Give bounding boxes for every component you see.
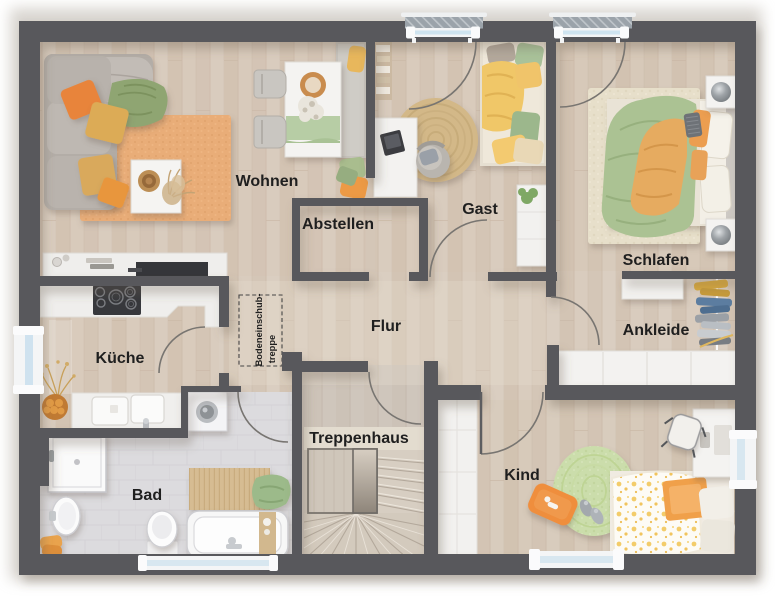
svg-text:Bad: Bad	[132, 487, 162, 504]
svg-text:Ankleide: Ankleide	[623, 322, 690, 339]
svg-text:Schlafen: Schlafen	[623, 252, 690, 269]
svg-text:Wohnen: Wohnen	[236, 173, 299, 190]
svg-text:Bodeneinschub-: Bodeneinschub-	[254, 294, 264, 367]
svg-text:Abstellen: Abstellen	[302, 216, 374, 233]
svg-text:Treppenhaus: Treppenhaus	[309, 430, 409, 447]
svg-text:treppe: treppe	[267, 335, 277, 363]
svg-text:Küche: Küche	[96, 350, 145, 367]
svg-text:Gast: Gast	[462, 201, 498, 218]
svg-text:Flur: Flur	[371, 318, 401, 335]
svg-text:Kind: Kind	[504, 467, 540, 484]
